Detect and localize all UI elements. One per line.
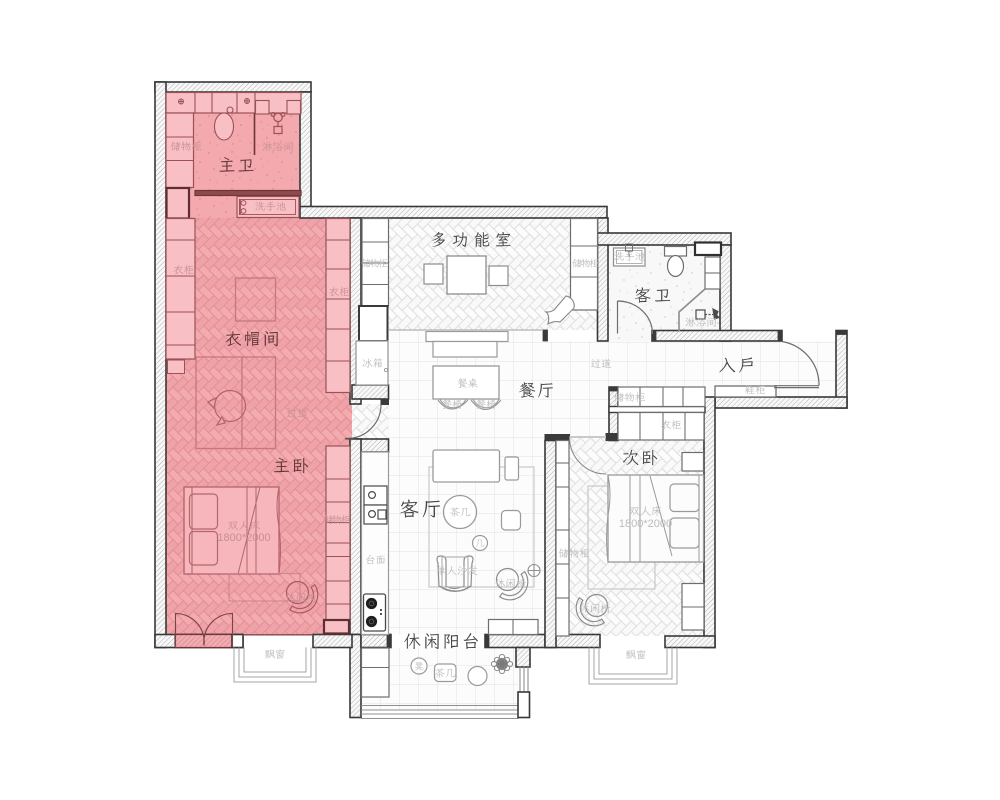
svg-text:1800*2000: 1800*2000 (217, 532, 270, 544)
svg-text:1800*2000: 1800*2000 (619, 518, 672, 530)
